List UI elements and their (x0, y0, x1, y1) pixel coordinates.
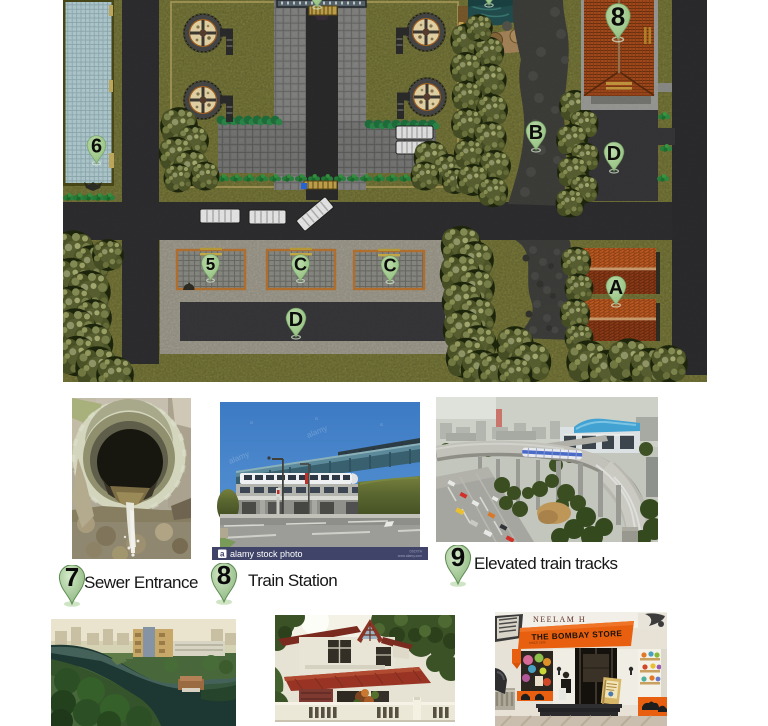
svg-text:C: C (383, 256, 396, 276)
svg-text:8: 8 (611, 1, 625, 31)
svg-text:a: a (315, 416, 318, 422)
svg-text:alamy stock photo: alamy stock photo (230, 549, 303, 559)
svg-text:a: a (250, 420, 253, 426)
svg-text:a: a (220, 550, 225, 559)
svg-text:D: D (289, 309, 303, 331)
svg-text:7: 7 (65, 565, 79, 592)
svg-text:D: D (607, 143, 621, 165)
svg-text:5: 5 (206, 255, 216, 274)
svg-text:8: 8 (217, 563, 231, 590)
svg-text:C: C (294, 255, 307, 275)
svg-text:a: a (380, 422, 383, 428)
svg-text:B: B (529, 122, 543, 144)
svg-text:SINCE 1906: SINCE 1906 (529, 640, 546, 645)
svg-text:6: 6 (91, 136, 102, 158)
svg-text:A: A (609, 277, 623, 299)
svg-text:9: 9 (451, 545, 465, 572)
svg-text:NEELAM H: NEELAM H (533, 615, 586, 624)
svg-text:D92XTA: D92XTA (409, 550, 422, 554)
svg-text:www.alamy.com: www.alamy.com (398, 554, 422, 558)
